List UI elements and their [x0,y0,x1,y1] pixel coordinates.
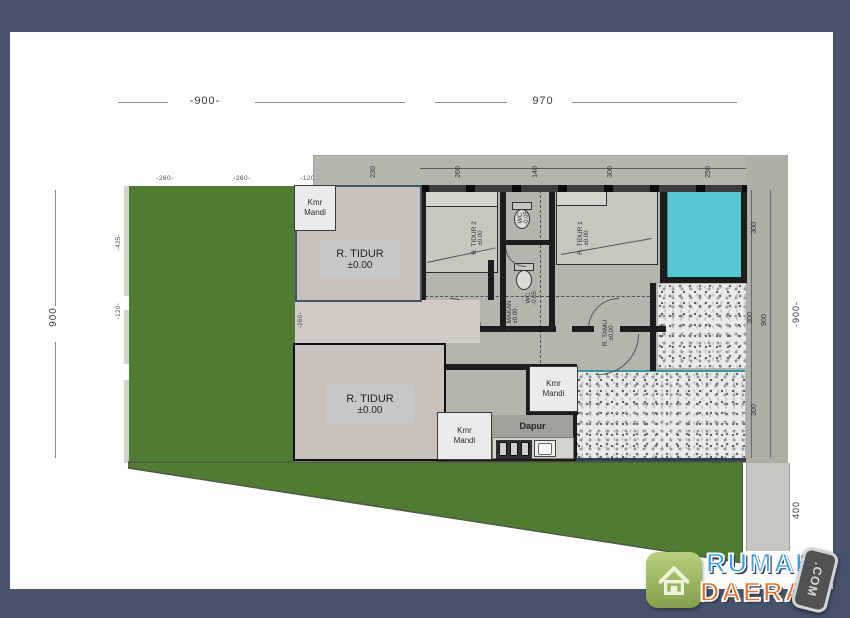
scan-dim: 300 [751,399,761,421]
burner [510,442,518,456]
scan-dim: 140 [532,161,542,183]
dim-line [55,342,56,458]
scan-dim: 260 [455,161,465,183]
yard-green-bottom [128,461,743,567]
scan-dim: 230 [370,161,380,183]
logo-tag-text: .COM [804,561,826,599]
wall [488,260,494,300]
room-name: Mandi [454,436,476,446]
logo-house-tile [646,552,702,608]
overlay-kmr-mandi-mid: Kmr Mandi [529,366,578,412]
scan-dim-line [420,168,746,169]
room-level: -0.05 [532,291,539,305]
scan-dim: 300 [607,161,617,183]
overlay-kmr-mandi-top: Kmr Mandi [294,185,336,231]
room-level: ±0.00 [478,231,485,246]
room-label-tidur2: R. TIDUR 2 ±0.00 [466,216,490,260]
wall [549,192,555,332]
gravel-carport [658,284,746,368]
overlay-hall [295,300,480,343]
wall [620,326,666,332]
room-name: Kmr [308,198,323,208]
room-name: Mandi [304,208,326,218]
room-name: R. MAKAN [506,300,513,331]
dim-line [435,102,507,103]
terrace-highlight [668,192,742,278]
room-name: R. TIDUR [346,393,393,405]
dim-line [572,102,737,103]
room-level: ±0.00 [358,405,383,416]
dim-small: -425- [116,227,122,257]
wall [500,240,555,245]
dim-top-left: -900- [175,95,235,107]
dim-line [55,190,56,306]
wall [572,326,594,332]
dim-line [255,102,405,103]
wall [660,277,747,283]
room-label-wc-top: WC -0.05 [516,203,532,233]
overlay-kmr-mandi-bottom: Kmr Mandi [437,412,492,460]
room-name: Dapur [519,421,545,431]
room-level: -0.05 [524,211,531,225]
room-name: WC [525,293,532,304]
dim-line [118,102,168,103]
dim-small: -120- [116,296,122,326]
room-level: ±0.00 [584,231,591,246]
dim-small: -260- [147,175,183,182]
room-label-makan: R. MAKAN ±0.00 [501,296,525,336]
room-name: WC [517,213,524,224]
scan-dim: 250 [705,161,715,183]
sink-icon [534,440,556,457]
dim-left-vertical: 900 [48,300,62,334]
overlay-room-tidur-bottom: R. TIDUR ±0.00 [293,343,446,461]
room-name: R. TIDUR [336,248,383,260]
scan-dim: 300 [747,307,757,329]
bed-pillow [425,192,497,207]
gravel-yard [573,370,745,460]
dim-top-right: 970 [510,95,576,107]
burner [521,442,529,456]
bed-pillow [557,192,607,206]
room-label-wc-bottom: WC -0.05 [524,283,540,313]
room-name: R. TIDUR 1 [577,221,584,254]
slide-canvas: -900- 970 900 -900- 400 -260- -260- -120… [0,0,850,618]
room-name: Kmr [457,426,472,436]
house-icon [654,560,694,600]
dim-road: 400 [791,493,803,527]
road-column [746,463,790,551]
sink-basin [538,443,552,455]
dim-right-vertical: -900- [791,296,803,332]
room-label-dapur: Dapur [492,415,573,437]
scan-dim: 300 [751,217,761,239]
room-name: R. TIDUR 2 [471,221,478,254]
dim-small: -260- [298,305,304,335]
stove-icon [496,440,532,459]
room-label-tidur-bottom: R. TIDUR ±0.00 [326,385,414,423]
wall [660,192,667,282]
room-label-tidur-top: R. TIDUR ±0.00 [320,240,400,278]
dim-small: -260- [224,175,260,182]
room-label-tamu: R. TAMU ±0.00 [597,313,621,353]
room-level: ±0.00 [348,260,373,271]
room-level: ±0.00 [609,326,616,341]
burner [499,442,507,456]
room-name: Mandi [543,389,565,399]
room-name: Kmr [546,379,561,389]
scan-dim: 900 [761,309,771,331]
wall [650,283,656,371]
wall [420,185,747,192]
room-name: R. TAMU [602,320,609,346]
wall [741,192,747,282]
yard-green-left [129,186,295,463]
room-level: ±0.00 [513,309,520,324]
room-label-tidur1: R. TIDUR 1 ±0.00 [572,216,596,260]
